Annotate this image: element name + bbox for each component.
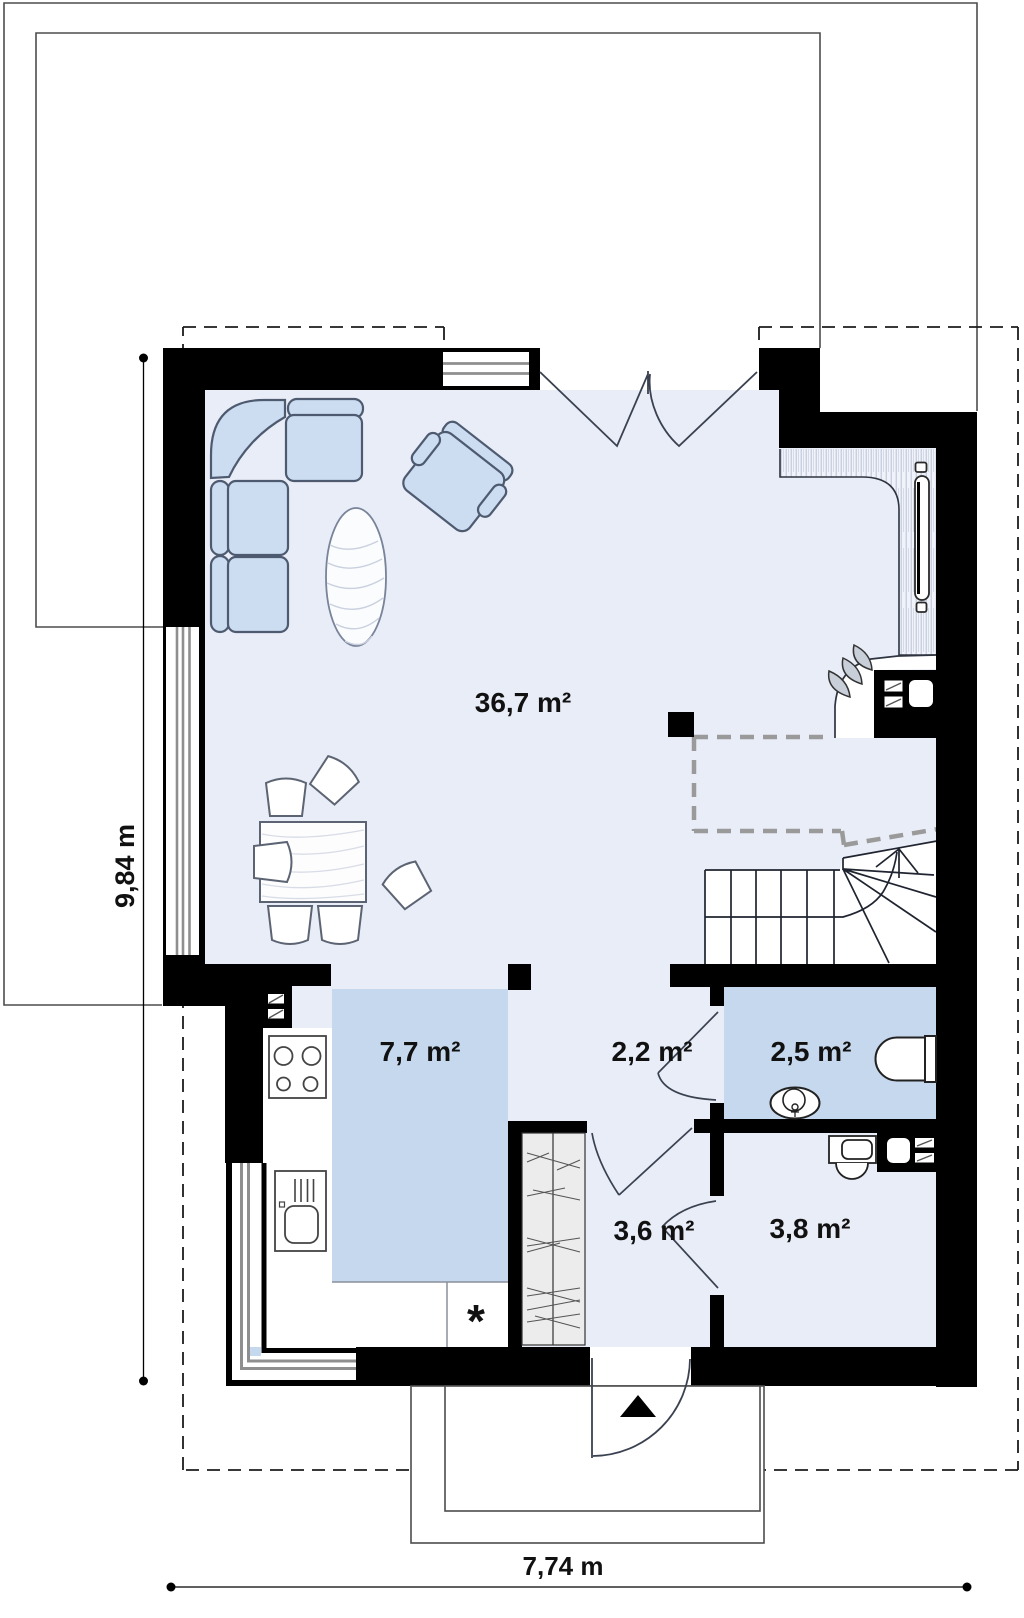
svg-text:2,2 m²: 2,2 m² [612,1036,693,1067]
svg-text:9,84 m: 9,84 m [110,824,140,908]
svg-text:3,6 m²: 3,6 m² [614,1215,695,1246]
svg-text:36,7 m²: 36,7 m² [475,687,572,718]
svg-text:3,8 m²: 3,8 m² [770,1213,851,1244]
svg-text:2,5 m²: 2,5 m² [771,1036,852,1067]
svg-text:7,74 m: 7,74 m [523,1551,604,1581]
svg-text:*: * [467,1295,485,1347]
svg-text:7,7 m²: 7,7 m² [380,1036,461,1067]
